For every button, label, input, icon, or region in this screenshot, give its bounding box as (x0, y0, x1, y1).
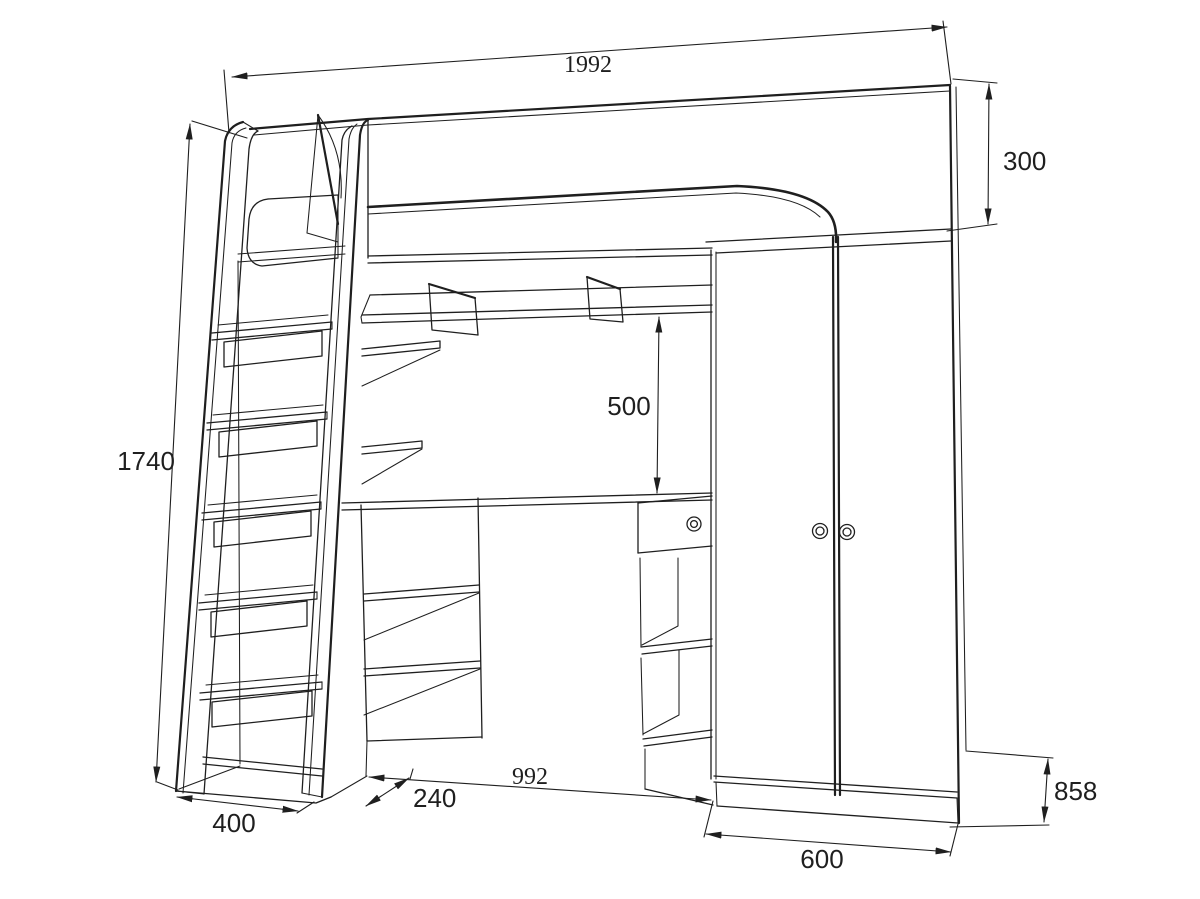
drawer-pedestal (638, 496, 713, 805)
corner-shelf-upper (362, 341, 440, 386)
drawer-knob-icon (687, 517, 701, 531)
wardrobe-knob-left-icon (813, 524, 828, 539)
wardrobe (706, 229, 958, 823)
guard-rail-top (368, 186, 836, 242)
dim-ladder-width-label: 400 (212, 808, 255, 838)
pillow (307, 115, 341, 242)
under-desk-shelf-unit (361, 498, 482, 776)
wardrobe-top-edge (706, 229, 951, 242)
bed-frame (238, 85, 966, 823)
dim-overall-width-label: 1992 (564, 52, 612, 78)
guard-rail-inner (368, 193, 820, 217)
furniture-technical-drawing: 1992 300 1740 500 992 400 240 600 (0, 0, 1200, 899)
wardrobe-knob-right-icon (840, 525, 855, 540)
dim-desk-width-label: 992 (512, 764, 548, 790)
ladder-right-rail-outer (322, 120, 368, 797)
bed-left-side-panel (238, 261, 240, 764)
ladder-steps (176, 315, 367, 803)
dim-ladder-depth-label: 240 (413, 783, 456, 813)
dim-overall-height-label: 1740 (117, 446, 175, 476)
ladder-left-rail-inner (204, 131, 258, 794)
wardrobe-door-split (833, 237, 835, 795)
dim-back-panel-height-label: 300 (1003, 146, 1046, 176)
dim-line-side-depth (1044, 759, 1048, 822)
dim-line-ladder-depth (366, 778, 409, 806)
dim-side-depth-label: 858 (1054, 776, 1097, 806)
loft-bed-diagram: 1992 300 1740 500 992 400 240 600 (0, 0, 1200, 899)
dim-line-back-panel-height (988, 84, 989, 224)
dim-line-shelf-to-desk (657, 317, 659, 493)
bed-top-edge-inner (254, 91, 950, 135)
dim-shelf-to-desk-label: 500 (607, 391, 650, 421)
bed-top-edge (250, 85, 950, 129)
dim-wardrobe-width-label: 600 (800, 844, 843, 874)
corner-shelf-lower (362, 441, 422, 484)
wardrobe-plinth-bottom (717, 806, 958, 823)
ladder-floor-edge (176, 791, 331, 803)
